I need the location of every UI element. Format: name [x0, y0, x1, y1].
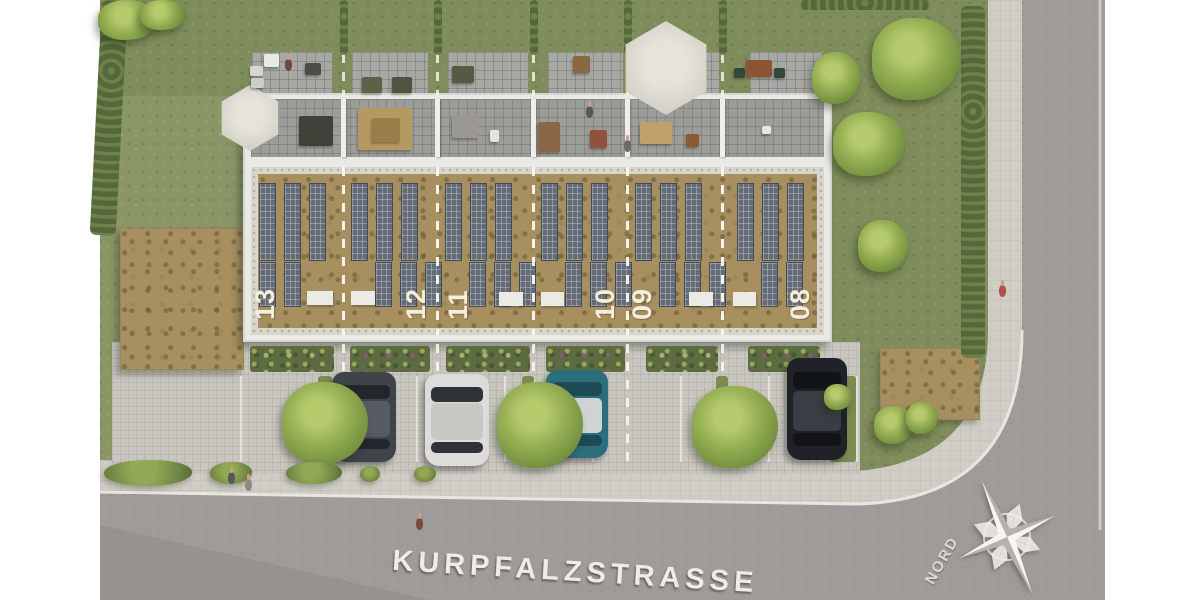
patio-furniture — [686, 134, 699, 147]
parcel-dashed-line — [626, 167, 629, 335]
car-roof — [431, 403, 482, 440]
solar-panel — [495, 183, 512, 261]
parcel-dashed-line — [342, 167, 345, 335]
boundary-hedge — [961, 6, 985, 358]
parking-stall-line — [856, 376, 858, 462]
garden-divider-hedge — [530, 0, 538, 55]
patio-furniture — [490, 130, 499, 142]
parking-stall-line — [416, 376, 418, 462]
parking-stall-line — [680, 376, 682, 462]
aerial-site-plan: KURPFALZSTRASSE NORD 131211100908 — [0, 0, 1200, 600]
patio-furniture — [452, 116, 478, 138]
parcel-dashed-line — [626, 344, 629, 466]
pedestrian — [586, 106, 593, 118]
garden-shed-green-roof — [120, 228, 244, 370]
parcel-dashed-line — [532, 167, 535, 335]
roof-hatch — [307, 291, 333, 305]
patio-furniture — [251, 78, 264, 88]
patio-furniture — [774, 68, 785, 78]
solar-panel — [565, 262, 582, 307]
garden-divider-hedge — [434, 0, 442, 55]
patio-furniture — [372, 118, 400, 142]
patio-furniture — [305, 63, 321, 75]
parcel-dashed-line — [436, 167, 439, 335]
solar-panel — [762, 183, 779, 261]
solar-panel — [566, 183, 583, 261]
patio-furniture — [640, 122, 672, 144]
pedestrian — [285, 59, 292, 71]
pedestrian — [416, 518, 423, 530]
patio-furniture — [452, 66, 474, 83]
car-windshield — [431, 387, 482, 402]
terrace-divider-wall — [531, 99, 536, 157]
garden-divider-hedge — [719, 0, 727, 55]
pedestrian — [999, 285, 1006, 297]
patio-furniture — [264, 54, 279, 67]
patio-furniture — [573, 56, 590, 73]
solar-panel — [284, 262, 301, 307]
patio-furniture — [538, 122, 560, 152]
patio-furniture — [362, 77, 382, 93]
patio-furniture — [762, 126, 771, 134]
terrace-divider-wall — [341, 99, 346, 157]
solar-panel — [660, 183, 677, 261]
solar-panel — [787, 183, 804, 261]
front-garden-bed — [250, 346, 334, 372]
patio-furniture — [590, 130, 607, 148]
unit-number-label: 12 — [403, 272, 429, 320]
unit-number-label: 08 — [787, 272, 813, 320]
car-rear-window — [431, 442, 482, 453]
patio-furniture — [746, 60, 772, 77]
solar-panel — [259, 183, 276, 261]
roof-hatch — [689, 292, 713, 306]
parcel-dashed-line — [721, 167, 724, 335]
compass-rose-icon — [937, 467, 1077, 600]
patio-furniture — [299, 116, 333, 146]
roof-hatch — [499, 292, 523, 306]
solar-panel — [445, 183, 462, 261]
pedestrian — [228, 472, 235, 484]
solar-panel — [284, 183, 301, 261]
roof-hatch — [733, 292, 756, 306]
pedestrian — [245, 479, 252, 491]
front-garden-bed — [646, 346, 718, 372]
front-garden-bed — [546, 346, 625, 372]
front-garden-bed — [446, 346, 530, 372]
solar-panel — [541, 183, 558, 261]
solar-panel — [591, 183, 608, 261]
front-garden-bed — [350, 346, 430, 372]
roof-hatch — [351, 291, 375, 305]
boundary-hedge — [800, 0, 930, 10]
terrace-divider-wall — [435, 99, 440, 157]
solar-panel — [376, 183, 393, 261]
solar-panel — [737, 183, 754, 261]
patio-furniture — [734, 68, 745, 78]
unit-number-label: 13 — [252, 272, 278, 320]
solar-panel — [685, 183, 702, 261]
parking-stall-line — [240, 376, 242, 462]
unit-number-label: 11 — [445, 272, 471, 320]
garden-divider-hedge — [340, 0, 348, 55]
patio-furniture — [250, 66, 263, 76]
patio-furniture — [392, 77, 412, 93]
solar-panel — [309, 183, 326, 261]
unit-number-label: 10 — [592, 272, 618, 320]
roof-hatch — [541, 292, 564, 306]
solar-panel — [635, 183, 652, 261]
solar-panel — [659, 262, 676, 307]
terrace-divider-wall — [720, 99, 725, 157]
pedestrian — [624, 140, 631, 152]
parked-car — [425, 374, 489, 466]
solar-panel — [351, 183, 368, 261]
solar-panel — [375, 262, 392, 307]
car-rear-window — [793, 433, 841, 445]
unit-number-label: 09 — [629, 272, 655, 320]
solar-panel — [401, 183, 418, 261]
solar-panel — [470, 183, 487, 261]
solar-panel — [761, 262, 778, 307]
